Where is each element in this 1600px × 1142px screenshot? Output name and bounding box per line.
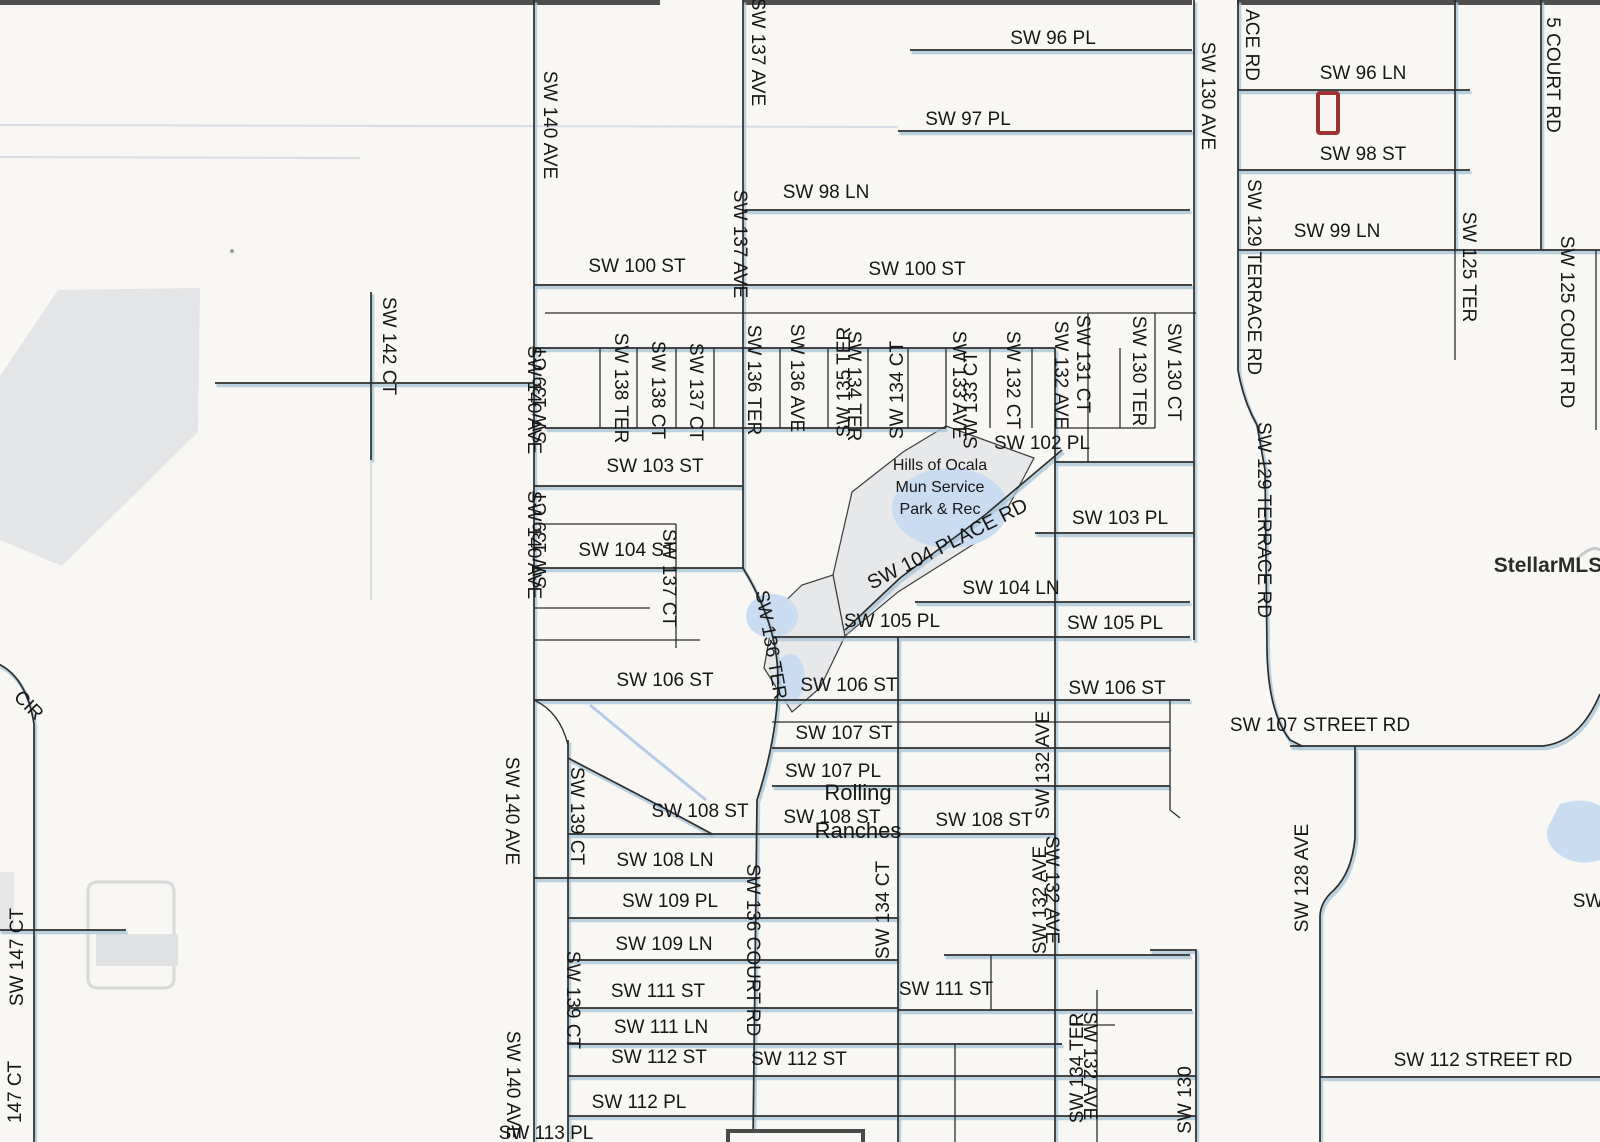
street-label: SW 103 PL	[1072, 508, 1168, 529]
street-label: SW 134 CT	[873, 861, 894, 960]
street-label: SW 128 AVE	[1292, 824, 1313, 932]
street-label: SW 125 TER	[1458, 212, 1479, 323]
street-label: SW 132 CT	[1002, 331, 1023, 430]
map-shape	[743, 0, 1192, 5]
street-label: SW 112 STREET RD	[1394, 1050, 1573, 1071]
map-canvas[interactable]: Hills of OcalaMun ServicePark & RecRolli…	[0, 0, 1600, 1142]
map-dot	[230, 249, 234, 253]
street-label: SW 136 COURT RD	[742, 864, 763, 1036]
street-label: SW 137 CT	[685, 343, 706, 442]
street-label: SW 106 ST	[616, 670, 714, 691]
street-label: SW 96 LN	[1320, 63, 1407, 84]
street-label: SW 108 ST	[783, 807, 881, 828]
street-label: 5 COURT RD	[1542, 17, 1563, 132]
street-label: SW 132 AVE	[1041, 836, 1062, 944]
street-label: SW 112 ST	[751, 1049, 847, 1070]
street-label: SW 112 ST	[611, 1047, 707, 1068]
street-label: SW 142 CT	[378, 297, 399, 396]
street-label: SW 106 ST	[800, 675, 898, 696]
street-label: SW 105 PL	[844, 611, 940, 632]
park-name-label: Hills of Ocala	[893, 457, 987, 474]
street-label: SW 109 LN	[615, 934, 712, 955]
street-label: SW 136 TER	[743, 325, 764, 436]
street-label: SW 102 PL	[994, 433, 1090, 454]
street-label: SW 147 CT	[7, 908, 28, 1007]
street-label: SW 140 AVE	[539, 71, 560, 179]
street-label: SW 125 COURT RD	[1556, 236, 1577, 408]
street-label: SW 105 PL	[1067, 613, 1163, 634]
street-label: SW 134 TER	[843, 331, 864, 442]
street-label: SW 139 CT	[562, 951, 583, 1050]
park-name-label: Park & Rec	[900, 501, 981, 518]
street-label: SW 139 CT	[530, 491, 551, 590]
inset-box-marker	[728, 1131, 863, 1142]
street-label: SW 138 CT	[647, 341, 668, 440]
map-shape	[1237, 0, 1600, 5]
street-label: SW 137 AVE	[729, 190, 750, 298]
street-label: SW 130 TER	[1128, 316, 1149, 427]
street-label: SW 107 STREET RD	[1230, 715, 1410, 736]
street-label: SW 130 CT	[1163, 323, 1184, 422]
street-label: SW 107 ST	[795, 723, 893, 744]
street-label: SW 100 ST	[868, 259, 966, 280]
street-label: SW 111 LN	[614, 1017, 708, 1038]
street-label: SW 97 PL	[925, 109, 1011, 130]
street-label: SW 108 ST	[935, 810, 1033, 831]
street-label: SW 109 PL	[622, 891, 718, 912]
street-label: SW 133 CT	[961, 351, 982, 450]
street-label: SW 132 AVE	[1050, 321, 1071, 429]
street-label: SW 140 AVE	[502, 1031, 523, 1139]
street-label: SW 137 CT	[658, 529, 679, 628]
watermark: StellarMLS	[1494, 554, 1600, 577]
road-faint	[0, 157, 360, 158]
street-label: 147 CT	[5, 1060, 26, 1123]
street-label: SW 138 TER	[610, 333, 631, 444]
street-label: SW 112 PL	[592, 1092, 687, 1113]
map-shape	[0, 0, 660, 5]
street-label: SW 136 AVE	[786, 324, 807, 432]
street-label: SW 137 AVE	[747, 0, 768, 106]
street-label: SW 108 LN	[616, 850, 713, 871]
street-label: SW 139 CT	[530, 346, 551, 445]
street-label: SW 98 ST	[1320, 144, 1407, 165]
map-shape	[96, 934, 178, 966]
street-label: SW 132 AVE	[1079, 1012, 1100, 1120]
street-label: SW 139 CT	[566, 767, 587, 866]
street-label: SW 130	[1175, 1066, 1196, 1134]
plat-map: Hills of OcalaMun ServicePark & RecRolli…	[0, 0, 1600, 1142]
street-label: SW 96 PL	[1010, 28, 1096, 49]
street-label: SW 129 TERRACE RD	[1253, 422, 1274, 618]
street-label: SW 111 ST	[899, 979, 994, 1000]
park-name-label: Mun Service	[896, 479, 985, 496]
street-label: SW 100 ST	[588, 256, 686, 277]
street-label: SW 134 CT	[887, 341, 908, 440]
street-label: SW 98 LN	[783, 182, 870, 203]
street-label: SW 107 PL	[785, 761, 881, 782]
street-label: ACE RD	[1241, 9, 1262, 81]
street-label: SW 106 ST	[1068, 678, 1166, 699]
street-label: SW 99 LN	[1294, 221, 1381, 242]
street-label: SW 132 AVE	[1033, 711, 1054, 819]
street-label: SW 103 ST	[606, 456, 704, 477]
street-label: SW 130 AVE	[1197, 42, 1218, 150]
street-label: SW 140 AVE	[501, 757, 522, 865]
street-label: SW 108 ST	[651, 801, 749, 822]
street-label: SW 131 CT	[1072, 315, 1093, 414]
street-label: SW 111 ST	[611, 981, 706, 1002]
street-label: SW 129 TERRACE RD	[1243, 179, 1264, 375]
street-label: SW	[1573, 891, 1600, 912]
street-label: SW 104 LN	[962, 578, 1059, 599]
subdivision-label: Rolling	[824, 780, 891, 805]
